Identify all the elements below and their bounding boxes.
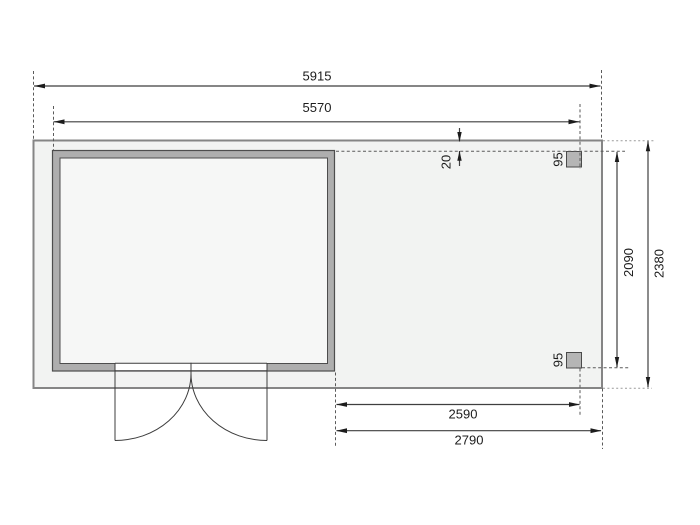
arrowhead-left [336, 402, 347, 407]
dim-label-overall-width: 5915 [303, 69, 332, 84]
arrowhead-left [336, 428, 347, 433]
dim-label-canopy-inner-width: 2590 [449, 407, 478, 422]
cabin [53, 151, 335, 372]
dim-overall-depth: 2380 [646, 141, 667, 388]
arrowhead-up [615, 152, 619, 163]
dim-label-edge-offset: 20 [439, 155, 454, 169]
arrowhead-right [569, 402, 580, 407]
post-bottom-right [567, 353, 582, 369]
dim-label-cabin-width: 5570 [303, 100, 332, 115]
arrowhead-down [615, 357, 619, 368]
arrowhead-left [54, 119, 65, 124]
dim-canopy-inner-width: 2590 [336, 402, 580, 421]
dim-label-canopy-width: 2790 [455, 433, 484, 448]
dim-canopy-inner-depth: 2090 [615, 152, 636, 368]
dim-label-post-bottom: 95 [551, 353, 566, 367]
arrowhead-up [646, 141, 650, 152]
arrowhead-right [569, 119, 580, 124]
dim-label-overall-depth: 2380 [652, 249, 667, 278]
dim-label-post-top: 95 [551, 152, 566, 166]
dim-overall-width: 5915 [34, 69, 601, 89]
dim-cabin-width: 5570 [54, 100, 580, 124]
arrowhead-down [646, 377, 650, 388]
arrowhead-right [590, 84, 601, 89]
arrowhead-left [34, 84, 45, 89]
arrowhead-right [591, 428, 602, 433]
cabin-interior [60, 158, 328, 364]
post-top-right [567, 152, 582, 168]
dim-label-canopy-inner-depth: 2090 [621, 248, 636, 277]
technical-drawing-page: 5915 5570 20 95 95 2090 2380 259 [0, 0, 700, 525]
dim-canopy-width: 2790 [336, 428, 602, 447]
floor-plan-canvas: 5915 5570 20 95 95 2090 2380 259 [0, 0, 700, 525]
